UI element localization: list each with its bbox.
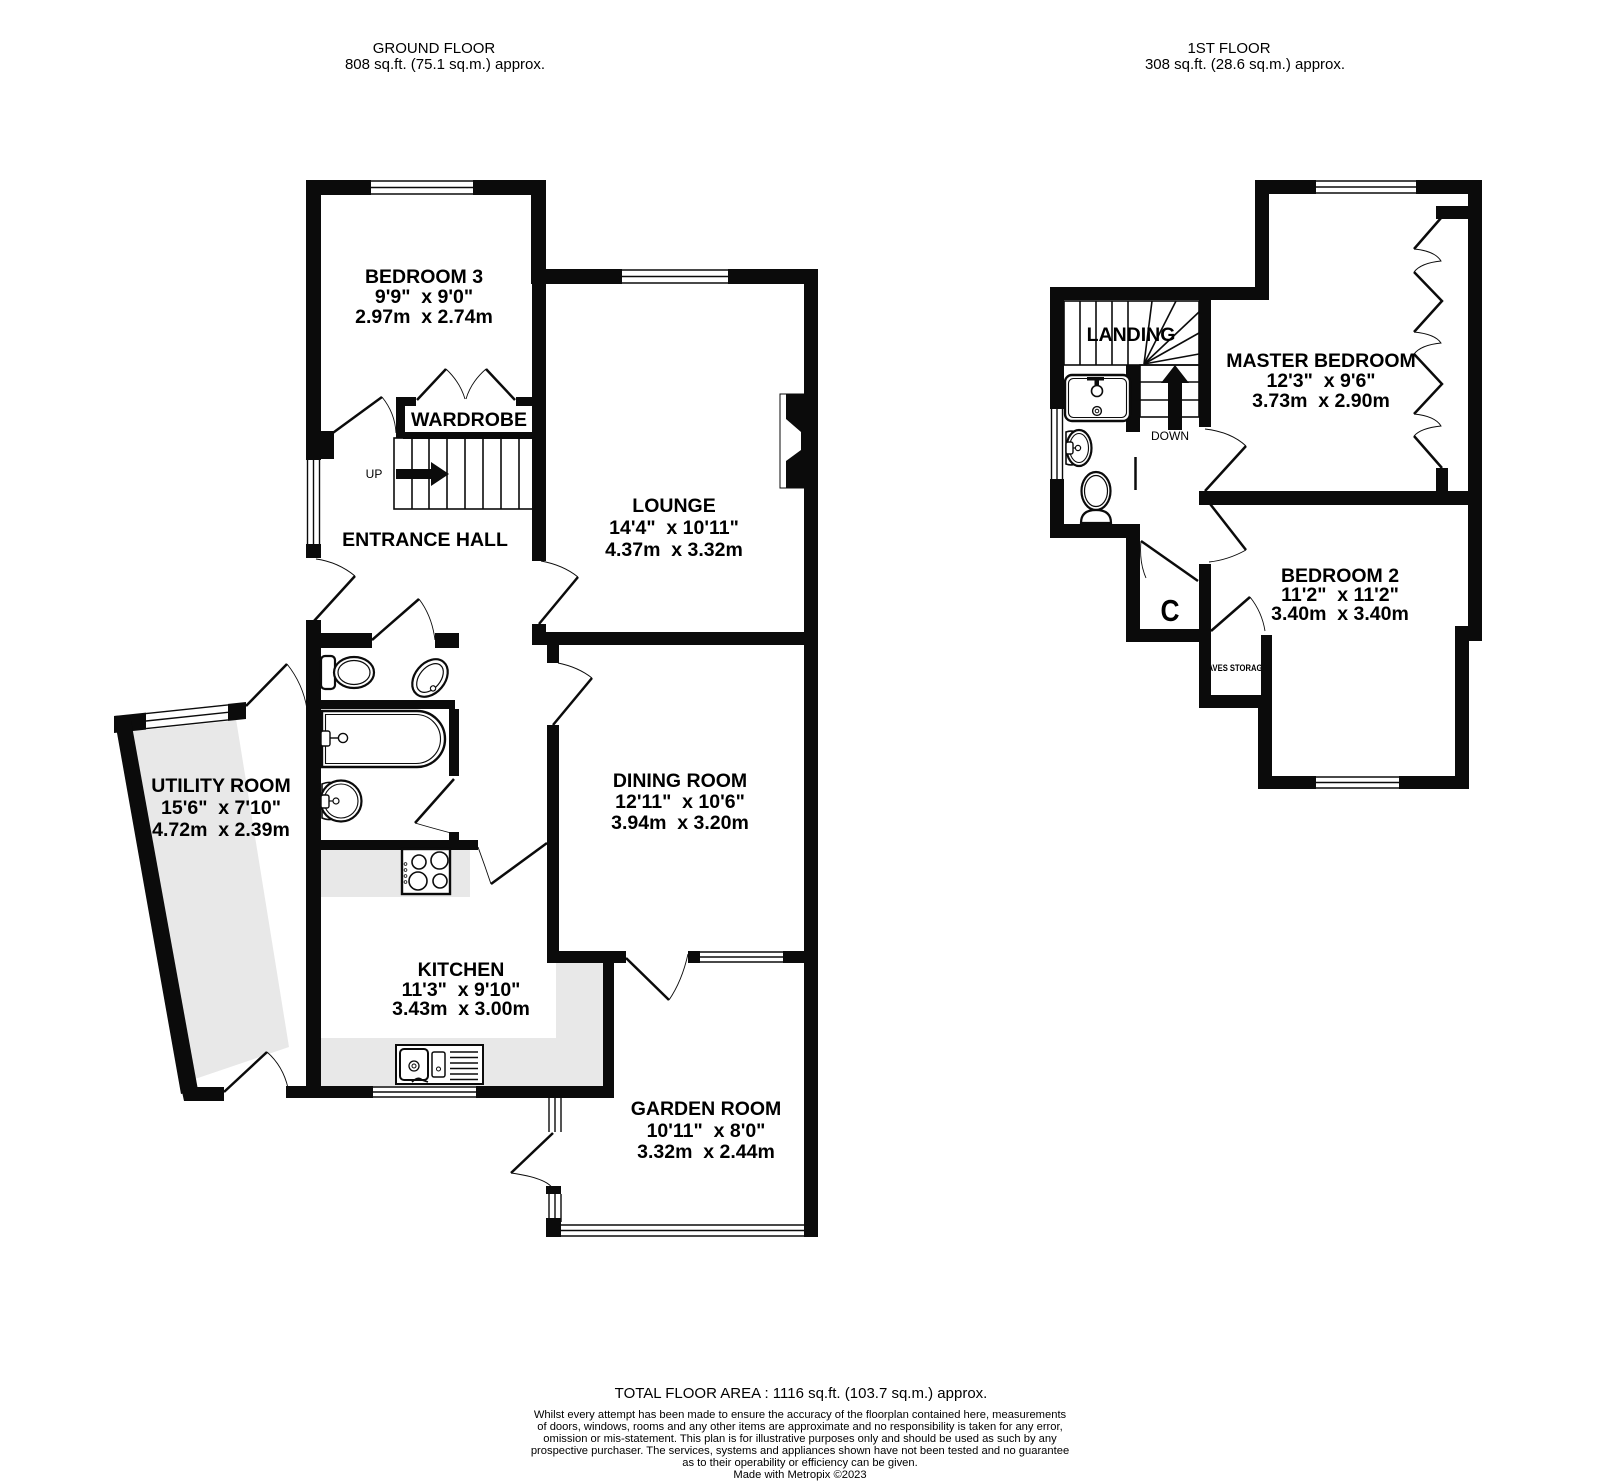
- svg-text:12'11" x 10'6": 12'11" x 10'6": [615, 791, 745, 813]
- svg-text:LANDING: LANDING: [1087, 324, 1176, 346]
- svg-text:UP: UP: [366, 467, 383, 481]
- svg-text:WARDROBE: WARDROBE: [411, 409, 527, 431]
- svg-text:KITCHEN: KITCHEN: [418, 959, 505, 981]
- svg-text:Made with Metropix ©2023: Made with Metropix ©2023: [733, 1469, 866, 1481]
- svg-text:4.37m x 3.32m: 4.37m x 3.32m: [605, 539, 743, 561]
- svg-text:808 sq.ft. (75.1 sq.m.) approx: 808 sq.ft. (75.1 sq.m.) approx.: [345, 56, 545, 73]
- svg-text:ENTRANCE HALL: ENTRANCE HALL: [342, 529, 508, 551]
- svg-text:DINING ROOM: DINING ROOM: [613, 770, 747, 792]
- svg-text:4.72m x 2.39m: 4.72m x 2.39m: [152, 819, 290, 841]
- svg-text:LOUNGE: LOUNGE: [632, 495, 715, 517]
- svg-text:3.32m x 2.44m: 3.32m x 2.44m: [637, 1141, 775, 1163]
- svg-text:C: C: [1161, 593, 1180, 628]
- svg-text:1ST FLOOR: 1ST FLOOR: [1187, 40, 1270, 57]
- svg-text:GARDEN ROOM: GARDEN ROOM: [631, 1098, 782, 1120]
- svg-text:2.97m x 2.74m: 2.97m x 2.74m: [355, 306, 493, 328]
- svg-text:12'3" x 9'6": 12'3" x 9'6": [1266, 370, 1375, 392]
- svg-text:15'6" x 7'10": 15'6" x 7'10": [161, 797, 281, 819]
- svg-text:Whilst every attempt has been: Whilst every attempt has been made to en…: [534, 1409, 1067, 1421]
- svg-text:as to their operability or eff: as to their operability or efficiency ca…: [682, 1457, 917, 1469]
- svg-text:14'4" x 10'11": 14'4" x 10'11": [609, 517, 739, 539]
- svg-text:omission or mis-statement. Thi: omission or mis-statement. This plan is …: [543, 1433, 1057, 1445]
- svg-text:DOWN: DOWN: [1151, 429, 1189, 443]
- svg-text:308 sq.ft. (28.6 sq.m.) approx: 308 sq.ft. (28.6 sq.m.) approx.: [1145, 56, 1345, 73]
- svg-text:of doors, windows, rooms and a: of doors, windows, rooms and any other i…: [537, 1421, 1062, 1433]
- svg-text:3.40m x 3.40m: 3.40m x 3.40m: [1271, 603, 1409, 625]
- svg-text:3.43m x 3.00m: 3.43m x 3.00m: [392, 998, 530, 1020]
- svg-text:3.73m x 2.90m: 3.73m x 2.90m: [1252, 390, 1390, 412]
- svg-text:prospective purchaser. The ser: prospective purchaser. The services, sys…: [531, 1445, 1069, 1457]
- svg-text:MASTER BEDROOM: MASTER BEDROOM: [1226, 350, 1416, 372]
- svg-text:BEDROOM 3: BEDROOM 3: [365, 266, 483, 288]
- svg-text:10'11" x 8'0": 10'11" x 8'0": [647, 1120, 766, 1142]
- svg-text:GROUND FLOOR: GROUND FLOOR: [373, 40, 496, 57]
- svg-text:UTILITY ROOM: UTILITY ROOM: [151, 775, 290, 797]
- svg-text:TOTAL FLOOR AREA : 1116 sq.ft.: TOTAL FLOOR AREA : 1116 sq.ft. (103.7 sq…: [615, 1385, 988, 1402]
- svg-text:EAVES STORAGE: EAVES STORAGE: [1203, 663, 1268, 674]
- svg-text:9'9" x 9'0": 9'9" x 9'0": [375, 286, 473, 308]
- svg-text:3.94m x 3.20m: 3.94m x 3.20m: [611, 812, 749, 834]
